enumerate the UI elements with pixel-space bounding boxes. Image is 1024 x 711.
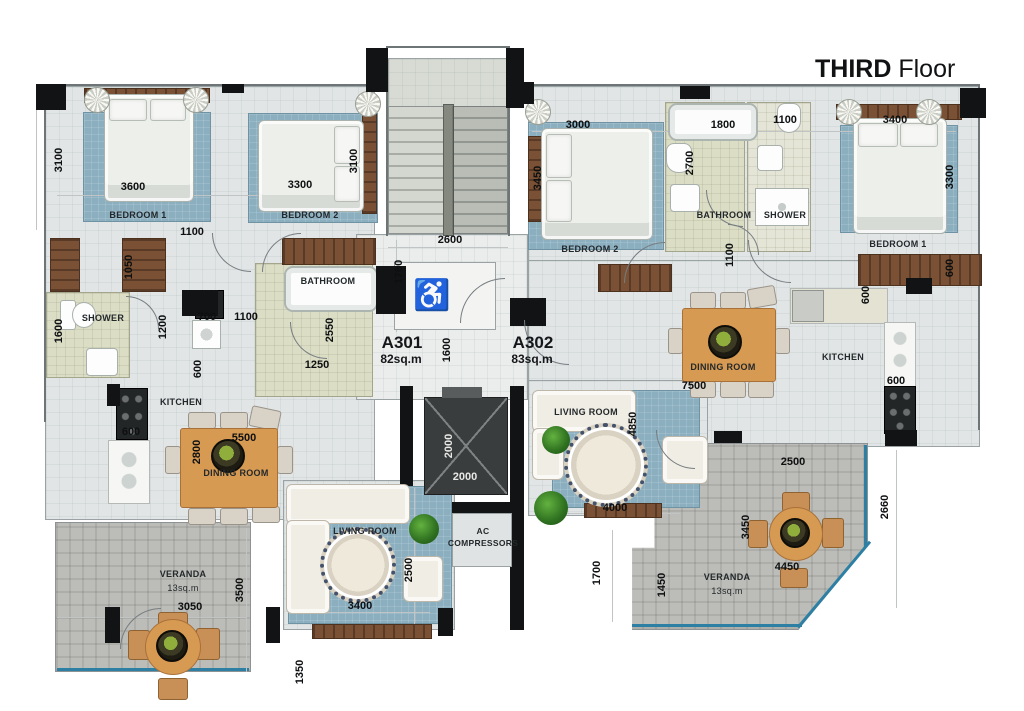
pillow <box>858 123 898 147</box>
dining-chair <box>220 508 248 525</box>
dim-label: 3500 <box>234 578 246 602</box>
dim-label: 600 <box>122 426 140 438</box>
dim-label: 7500 <box>682 380 706 392</box>
dining-chair <box>690 292 716 309</box>
pillow <box>900 123 938 147</box>
dim-label: 1100 <box>773 114 797 126</box>
room-label-bathroom-a301: BATHROOM <box>301 276 356 286</box>
dim-label: 4850 <box>627 412 639 436</box>
dim-label: 2660 <box>879 495 891 519</box>
outer-wall-top-left <box>44 84 376 86</box>
dim-label: 2550 <box>324 318 336 342</box>
dim-label: 1250 <box>305 359 329 371</box>
ac-room-label-line1: AC <box>477 526 490 536</box>
stairwell-wall-top <box>386 46 510 48</box>
room-label-dining-a301: DINING ROOM <box>203 468 268 478</box>
kitchen-appliance <box>792 290 824 322</box>
dim-label: 1350 <box>294 660 306 684</box>
veranda-window-right-side <box>864 445 867 547</box>
pillow <box>546 134 572 178</box>
dining-chair <box>775 328 790 354</box>
dim-label: 1050 <box>123 255 135 279</box>
dim-label: 3600 <box>121 181 145 193</box>
wall-segment <box>36 84 66 110</box>
wardrobe <box>50 238 80 292</box>
dim-label: 3450 <box>740 515 752 539</box>
washing-machine <box>192 320 221 349</box>
dining-chair <box>188 412 216 429</box>
stair-landing <box>388 58 508 108</box>
pillow <box>546 180 572 222</box>
outer-wall-left <box>44 84 46 422</box>
outer-wall-top-right <box>528 84 980 86</box>
pillow <box>150 99 186 121</box>
room-label-bathroom-a302: BATHROOM <box>697 210 752 220</box>
wall-segment <box>680 86 710 99</box>
veranda-window-left <box>57 668 249 671</box>
room-label-bedroom2-a302: BEDROOM 2 <box>561 244 618 254</box>
wall-segment <box>518 82 534 104</box>
title-bold: THIRD <box>815 55 891 83</box>
floor-plan: THIRD Floor ♿ AC COMPRESSORS <box>0 0 1024 711</box>
dim-label: 1100 <box>724 243 736 267</box>
dimension-line <box>896 450 897 608</box>
dim-label: 3050 <box>178 601 202 613</box>
dim-label: 1100 <box>234 311 258 323</box>
dim-label: 1760 <box>393 260 405 284</box>
fan-decor-icon <box>355 91 381 117</box>
wall-segment <box>105 607 120 643</box>
dim-label: 3100 <box>53 148 65 172</box>
room-label-veranda-a302: VERANDA <box>704 572 751 582</box>
dim-label: 3400 <box>883 114 907 126</box>
dim-label: 5500 <box>232 432 256 444</box>
room-label-living-a301: LIVING ROOM <box>333 526 397 536</box>
room-label-veranda-a301: VERANDA <box>160 569 207 579</box>
dim-label: 600 <box>887 375 905 387</box>
dim-label: 600 <box>192 360 204 378</box>
dining-chair <box>165 446 181 474</box>
dim-label: 3000 <box>566 119 590 131</box>
dim-label: 600 <box>944 259 956 277</box>
dim-label: 1600 <box>441 338 453 362</box>
dim-label: 700 <box>198 311 216 323</box>
room-label-shower-a301: SHOWER <box>82 313 124 323</box>
wall-segment <box>222 84 244 93</box>
dim-label: 4450 <box>775 561 799 573</box>
stairs-shadow-half <box>452 106 508 234</box>
dim-label: 2700 <box>684 151 696 175</box>
wall-segment <box>438 608 453 636</box>
wall-segment <box>714 431 742 443</box>
veranda-table-food <box>780 518 810 548</box>
room-label-kitchen-a302: KITCHEN <box>822 352 864 362</box>
shower-tray <box>755 188 809 226</box>
wall-segment <box>885 430 917 446</box>
wall-segment <box>960 88 986 118</box>
plant <box>534 491 568 525</box>
dim-label: 2800 <box>191 440 203 464</box>
dim-label: 3400 <box>348 600 372 612</box>
wall-segment <box>266 607 280 643</box>
ac-room-label-line2: COMPRESSORS <box>448 538 518 548</box>
unit-id-a301: A301 <box>382 333 423 353</box>
dining-chair <box>720 381 746 398</box>
room-label-bedroom1-a302: BEDROOM 1 <box>869 239 926 249</box>
fan-decor-icon <box>916 99 942 125</box>
dimension-line <box>246 528 247 672</box>
dimension-line <box>388 247 508 248</box>
veranda-window-right-bottom <box>632 624 802 627</box>
dimension-line <box>612 530 613 622</box>
fan-decor-icon <box>183 87 209 113</box>
room-label-bedroom2-a301: BEDROOM 2 <box>281 210 338 220</box>
room-label-bedroom1-a301: BEDROOM 1 <box>109 210 166 220</box>
dim-label: 3100 <box>348 149 360 173</box>
veranda-chair <box>158 678 188 700</box>
page-title: THIRD Floor <box>815 55 955 84</box>
dining-chair <box>748 381 774 398</box>
round-rug-a301 <box>320 527 396 603</box>
unit-id-a302: A302 <box>513 333 554 353</box>
dim-label: 1450 <box>656 573 668 597</box>
room-label-dining-a302: DINING ROOM <box>690 362 755 372</box>
pillow <box>109 99 147 121</box>
dining-chair <box>277 446 293 474</box>
bathtub-a301 <box>284 266 378 312</box>
dining-chair <box>720 292 746 309</box>
dim-label: 2600 <box>438 234 462 246</box>
sofa-a301 <box>286 484 410 524</box>
dim-label: 600 <box>860 286 872 304</box>
dimension-line <box>36 90 37 230</box>
dim-label: 1200 <box>157 315 169 339</box>
sink <box>670 184 700 212</box>
wall-segment <box>366 48 388 92</box>
plant <box>409 514 439 544</box>
room-label-veranda-area-a301: 13sq.m <box>167 583 198 593</box>
dim-label: 1800 <box>711 119 735 131</box>
dim-label: 1600 <box>53 319 65 343</box>
dim-label: 4000 <box>603 502 627 514</box>
wall-segment <box>906 278 932 294</box>
fan-decor-icon <box>836 99 862 125</box>
stove-a302 <box>884 386 916 434</box>
dim-label: 2000 <box>443 434 455 458</box>
sink <box>86 348 118 376</box>
room-label-living-a302: LIVING ROOM <box>554 407 618 417</box>
room-label-kitchen-a301: KITCHEN <box>160 397 202 407</box>
fan-decor-icon <box>84 87 110 113</box>
wheelchair-accessible-icon: ♿ <box>413 281 450 311</box>
wall-segment <box>107 384 120 406</box>
dining-chair <box>252 506 280 523</box>
unit-area-a302: 83sq.m <box>511 352 552 366</box>
dining-chair <box>188 508 216 525</box>
sink <box>757 145 783 171</box>
dim-label: 2000 <box>453 471 477 483</box>
tv-bench-a301 <box>312 624 432 639</box>
title-regular: Floor <box>891 55 955 83</box>
dim-label: 3450 <box>532 166 544 190</box>
unit-area-a301: 82sq.m <box>380 352 421 366</box>
room-label-shower-a302: SHOWER <box>764 210 806 220</box>
kitchen-counter-a301 <box>108 440 150 504</box>
dim-label: 3300 <box>944 165 956 189</box>
dim-label: 1700 <box>591 561 603 585</box>
headboard-a301-bedroom2 <box>362 110 377 214</box>
dim-label: 2500 <box>781 456 805 468</box>
dining-chair <box>668 328 683 354</box>
room-label-veranda-area-a302: 13sq.m <box>711 586 742 596</box>
elevator-door <box>442 387 482 398</box>
dim-label: 3300 <box>288 179 312 191</box>
dining-chair <box>220 412 248 429</box>
table-centerpiece <box>708 325 742 359</box>
plant <box>542 426 570 454</box>
dim-label: 1100 <box>180 226 204 238</box>
veranda-chair <box>822 518 844 548</box>
dim-label: 2500 <box>403 558 415 582</box>
